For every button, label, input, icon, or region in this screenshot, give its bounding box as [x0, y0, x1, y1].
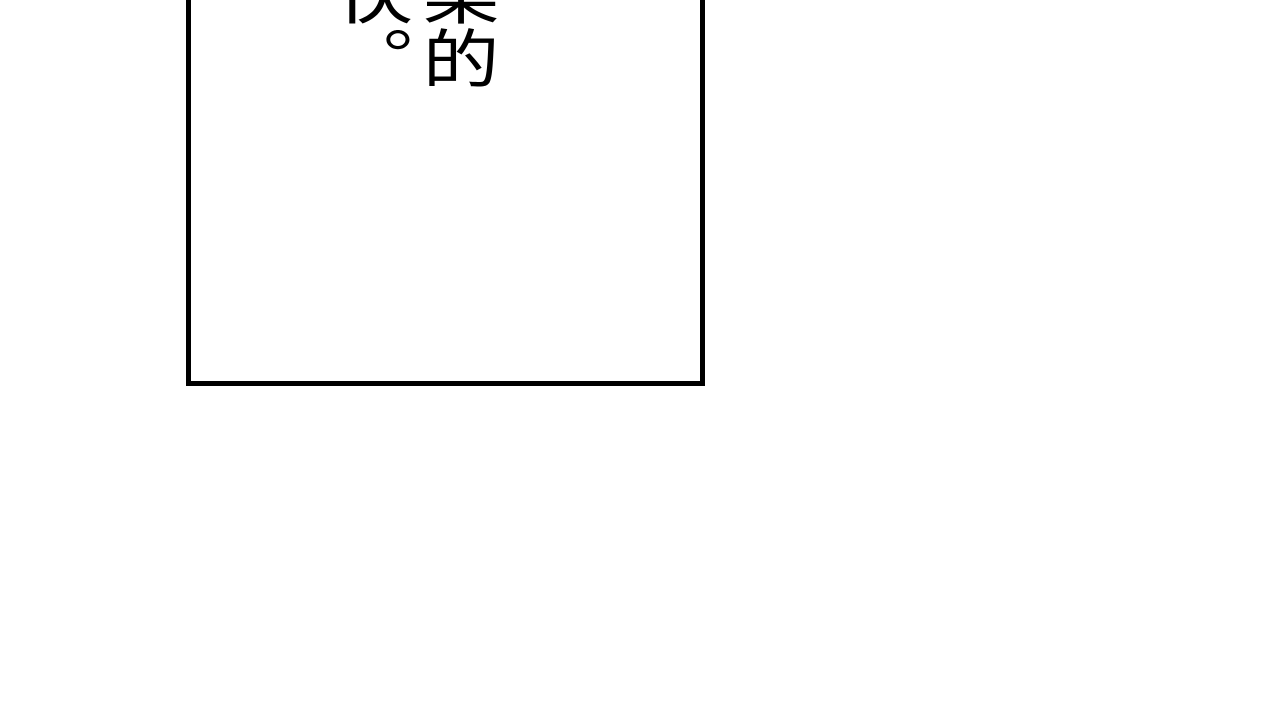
comic-page: 柔的 伙。 — [0, 0, 1280, 704]
comic-panel: 柔的 伙。 — [186, 0, 705, 386]
speech-text: 柔的 伙。 — [324, 0, 497, 202]
